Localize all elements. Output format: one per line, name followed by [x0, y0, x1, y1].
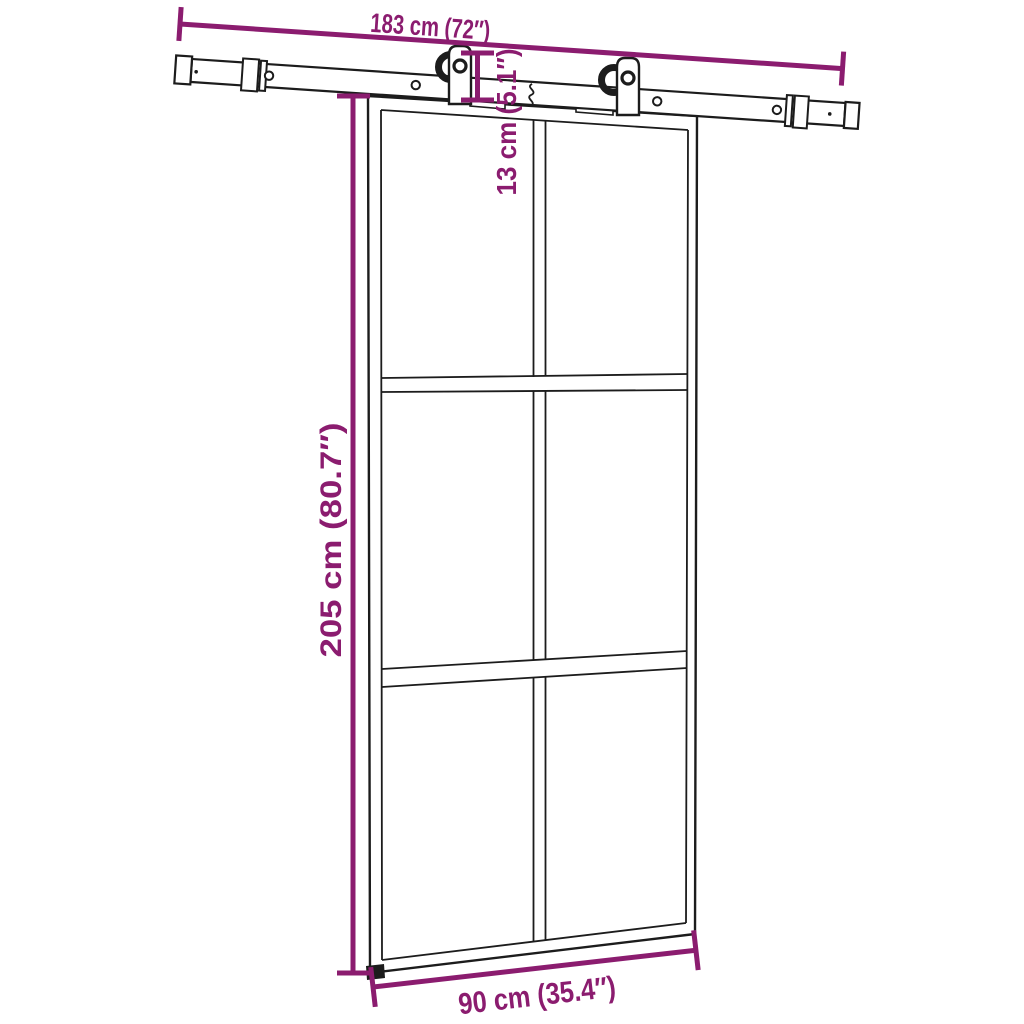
glass-sliding-door: [366, 96, 697, 980]
rail-hole: [653, 97, 662, 106]
hanger-strap: [617, 58, 639, 115]
dimension-door-height: 205 cm (80.7″): [315, 96, 370, 973]
door-height-label: 205 cm (80.7″): [315, 423, 348, 658]
hanger-drop-label: 13 cm (5.1″): [491, 49, 522, 196]
hanger-bolt-hole: [622, 72, 634, 84]
diagram-canvas: 183 cm (72″) 13 cm (5.1″) 205 cm (80.7″)…: [0, 0, 1024, 1024]
door-divider-lower: [382, 651, 687, 687]
rail-bracket-left: [241, 58, 259, 91]
dimension-tick: [694, 930, 699, 970]
dimension-tick: [179, 7, 181, 41]
door-divider-upper: [382, 374, 687, 392]
hanger-bolt-hole: [454, 60, 466, 72]
rail-hole: [411, 81, 420, 90]
dimension-door-width: 90 cm (35.4″): [371, 930, 701, 1024]
door-inner-frame: [381, 110, 688, 960]
door-center-mullion: [534, 120, 546, 941]
rail-hole: [772, 105, 781, 114]
rail-end-cap-right: [844, 102, 860, 129]
door-outer-frame: [368, 96, 697, 973]
product-dimension-diagram: 183 cm (72″) 13 cm (5.1″) 205 cm (80.7″)…: [0, 0, 1024, 1024]
rail-bracket-right-ridge: [785, 95, 793, 126]
rail-end-cap-left: [174, 55, 192, 84]
rail-hole: [265, 71, 274, 80]
dimension-tick: [841, 52, 843, 86]
door-width-label: 90 cm (35.4″): [457, 971, 618, 1022]
rail-bracket-right: [793, 96, 809, 129]
